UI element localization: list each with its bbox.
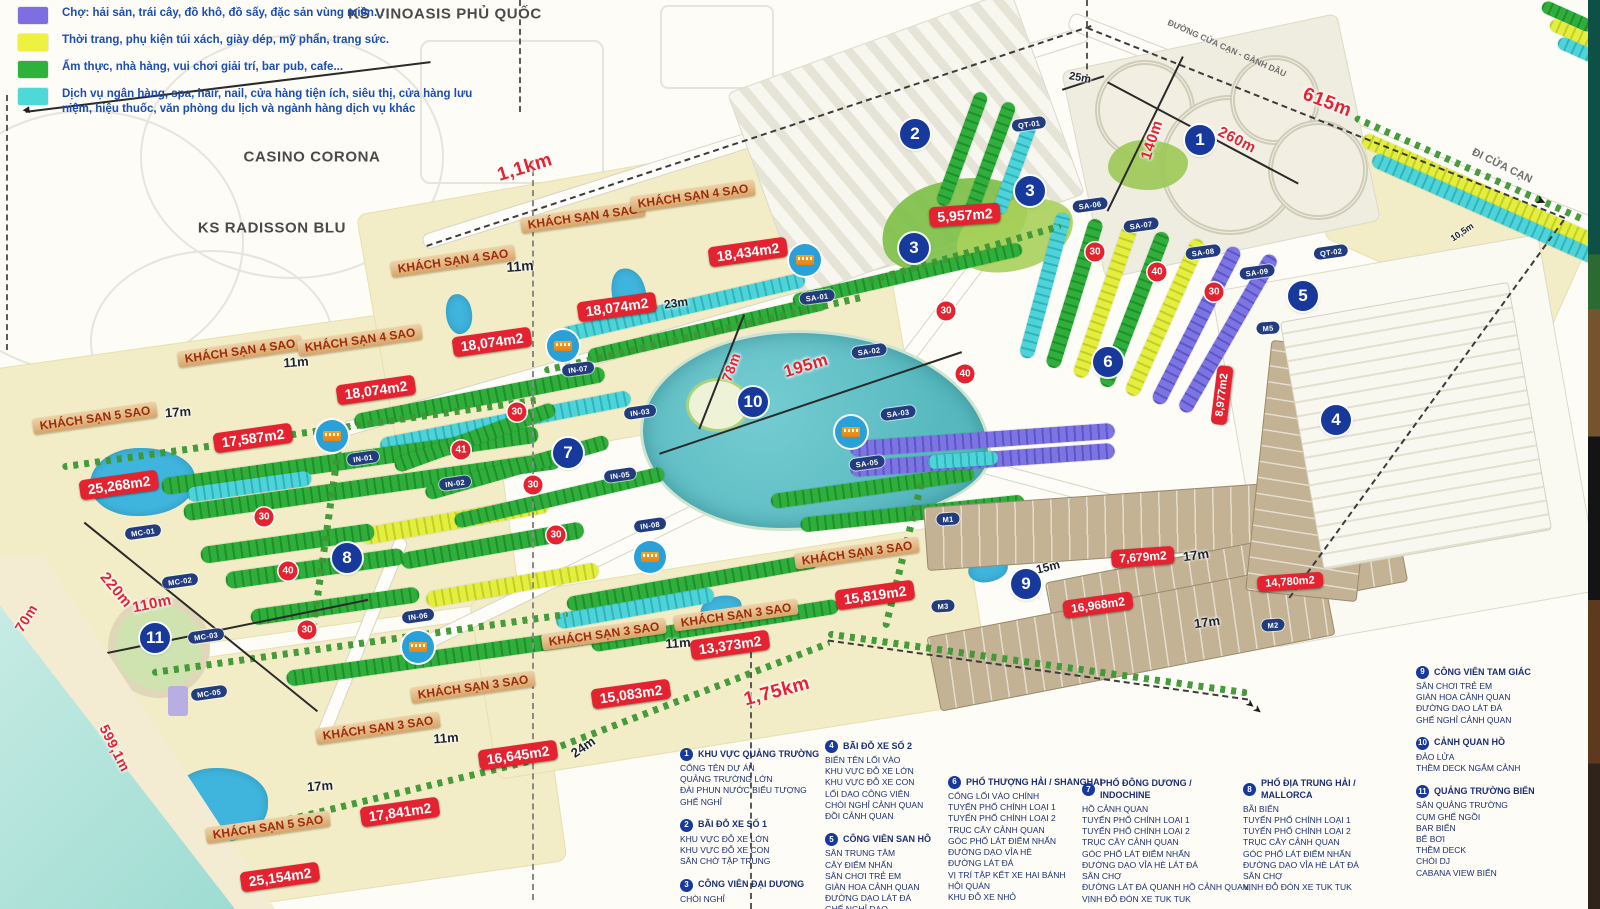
legend-swatch bbox=[18, 61, 48, 78]
construction-line bbox=[1086, 0, 1088, 80]
mini-marker: 30 bbox=[547, 526, 566, 545]
legend-entry-7: 7PHỐ ĐÔNG DƯƠNG / INDOCHINEHỒ CẢNH QUANT… bbox=[1082, 778, 1242, 905]
tag: M5 bbox=[1256, 321, 1280, 335]
mini-marker: 30 bbox=[1205, 283, 1224, 302]
legend-label: Dịch vụ ngân hàng, spa, hair, nail, cửa … bbox=[62, 87, 488, 117]
legend-entry-title: KHU VỰC QUẢNG TRƯỜNG bbox=[698, 749, 819, 761]
marker: 2 bbox=[900, 119, 930, 149]
black-distance: 11m bbox=[433, 730, 459, 747]
legend-entry-number: 7 bbox=[1082, 783, 1095, 796]
tag: M3 bbox=[931, 599, 955, 613]
legend-column: 1KHU VỰC QUẢNG TRƯỜNGCỔNG TÊN DỰ ÁNQUẢNG… bbox=[680, 748, 840, 909]
legend-entry-line: TUYẾN PHỐ CHÍNH LOẠI 2 bbox=[1243, 826, 1403, 837]
marker: 3 bbox=[899, 233, 929, 263]
legend-entry-line: BIỂN TÊN LỐI VÀO bbox=[825, 755, 985, 766]
legend-swatch bbox=[18, 88, 48, 105]
marker: 5 bbox=[1288, 281, 1318, 311]
bus-icon bbox=[796, 255, 814, 265]
black-distance: 17m bbox=[164, 404, 191, 421]
bus-icon bbox=[641, 552, 659, 562]
adjacent-image-sliver bbox=[1588, 0, 1600, 909]
legend-entry-title: BÃI ĐỖ XE SỐ 1 bbox=[698, 819, 767, 831]
bus-icon bbox=[842, 427, 860, 437]
legend-entry-number: 6 bbox=[948, 776, 961, 789]
legend-entry-title: CÔNG VIÊN SAN HÔ bbox=[843, 834, 931, 846]
bus-stop-icon bbox=[789, 244, 821, 276]
legend-label: Chợ: hải sản, trái cây, đồ khô, đồ sấy, … bbox=[62, 6, 384, 21]
tag: M1 bbox=[936, 512, 960, 526]
legend-entry-line: CỔNG TÊN DỰ ÁN bbox=[680, 763, 840, 774]
legend-item: Chợ: hải sản, trái cây, đồ khô, đồ sấy, … bbox=[18, 6, 488, 24]
legend-entry-line: ĐƯỜNG LÁT ĐÁ QUANH HỒ CẢNH QUAN bbox=[1082, 882, 1242, 893]
legend-entry-number: 1 bbox=[680, 748, 693, 761]
marker: 11 bbox=[140, 623, 170, 653]
legend-entry-line: TUYẾN PHỐ CHÍNH LOẠI 2 bbox=[1082, 826, 1242, 837]
mini-marker: 30 bbox=[524, 476, 543, 495]
mini-marker: 30 bbox=[255, 508, 274, 527]
legend-entry-line: VỊNH ĐỖ ĐÓN XE TUK TUK bbox=[1082, 894, 1242, 905]
legend-column: 8PHỐ ĐỊA TRUNG HẢI / MALLORCABÃI BIỂNTUY… bbox=[1243, 778, 1403, 905]
legend-item: Ẩm thực, nhà hàng, vui chơi giải trí, ba… bbox=[18, 60, 488, 78]
black-distance: 17m bbox=[306, 778, 333, 795]
black-distance: 11m bbox=[665, 635, 691, 652]
mini-marker: 30 bbox=[508, 403, 527, 422]
mini-marker: 40 bbox=[956, 365, 975, 384]
legend-entry-title: QUẢNG TRƯỜNG BIỂN bbox=[1434, 786, 1535, 798]
beach-building bbox=[168, 686, 188, 716]
legend-entry-line: ĐƯỜNG DẠO VỈA HÈ LÁT ĐÁ bbox=[1243, 860, 1403, 871]
legend-swatch bbox=[18, 7, 48, 24]
legend-entry-line: ĐẢO LỬA bbox=[1416, 752, 1576, 763]
legend-entry-line: VỊNH ĐỖ ĐÓN XE TUK TUK bbox=[1243, 882, 1403, 893]
mini-marker: 30 bbox=[1086, 243, 1105, 262]
legend-entry-line: ĐƯỜNG DẠO VỈA HÈ LÁT ĐÁ bbox=[1082, 860, 1242, 871]
legend-entry-line: TRỤC CÂY CẢNH QUAN bbox=[1082, 837, 1242, 848]
legend-item: Thời trang, phụ kiện túi xách, giày dép,… bbox=[18, 33, 488, 51]
mini-marker: 30 bbox=[937, 302, 956, 321]
legend-entry-line: BAR BIỂN bbox=[1416, 823, 1576, 834]
legend-entry-number: 8 bbox=[1243, 783, 1256, 796]
legend-entry-number: 11 bbox=[1416, 785, 1429, 798]
mini-marker: 41 bbox=[452, 441, 471, 460]
bus-icon bbox=[409, 642, 427, 652]
legend-entry-line: THỀM DECK NGẮM CẢNH bbox=[1416, 763, 1576, 774]
landmark: CASINO CORONA bbox=[244, 149, 381, 166]
marker: 10 bbox=[738, 387, 768, 417]
tag: SA-09 bbox=[1239, 264, 1275, 281]
housing-grid bbox=[1280, 282, 1552, 570]
legend-entry-line: SÂN CHỢ bbox=[1243, 871, 1403, 882]
legend-entry-line: GHẾ NGHỈ CẢNH QUAN bbox=[1416, 715, 1576, 726]
legend-entry-line: KHU VỰC ĐỖ XE CON bbox=[680, 845, 840, 856]
legend-entry-line: KHU VỰC ĐỖ XE LỚN bbox=[680, 834, 840, 845]
legend-entry-9: 9CÔNG VIÊN TAM GIÁCSÂN CHƠI TRẺ EMGIÀN H… bbox=[1416, 666, 1576, 726]
mini-marker: 30 bbox=[298, 621, 317, 640]
legend-column: 7PHỐ ĐÔNG DƯƠNG / INDOCHINEHỒ CẢNH QUANT… bbox=[1082, 778, 1242, 909]
legend-entry-title: PHỐ ĐỊA TRUNG HẢI / MALLORCA bbox=[1261, 778, 1403, 802]
legend-entry-line: GÓC PHỐ LÁT ĐIỂM NHẤN bbox=[1243, 849, 1403, 860]
legend-entry-line: TUYẾN PHỐ CHÍNH LOẠI 1 bbox=[1082, 815, 1242, 826]
bus-stop-icon bbox=[547, 330, 579, 362]
legend-entry-line: ĐÀI PHUN NƯỚC BIỂU TƯỢNG bbox=[680, 785, 840, 796]
legend-entry-line: ĐƯỜNG DẠO LÁT ĐÁ bbox=[1416, 703, 1576, 714]
legend-entry-10: 10CẢNH QUAN HỒĐẢO LỬATHỀM DECK NGẮM CẢNH bbox=[1416, 737, 1576, 774]
legend-entry-line: SÂN CHỜ TẬP TRUNG bbox=[680, 856, 840, 867]
bus-icon bbox=[323, 431, 341, 441]
legend-label: Thời trang, phụ kiện túi xách, giày dép,… bbox=[62, 33, 389, 48]
legend-entry-11: 11QUẢNG TRƯỜNG BIỂNSÂN QUẢNG TRƯỜNGCỤM G… bbox=[1416, 785, 1576, 879]
legend-entry-8: 8PHỐ ĐỊA TRUNG HẢI / MALLORCABÃI BIỂNTUY… bbox=[1243, 778, 1403, 894]
black-distance: 11m bbox=[283, 354, 309, 371]
legend-entry-line: CABANA VIEW BIỂN bbox=[1416, 868, 1576, 879]
boundary-dashed bbox=[6, 95, 8, 350]
marker: 6 bbox=[1093, 347, 1123, 377]
mini-marker: 40 bbox=[1148, 263, 1167, 282]
legend-entry-2: 2BÃI ĐỖ XE SỐ 1KHU VỰC ĐỖ XE LỚNKHU VỰC … bbox=[680, 819, 840, 868]
legend-entry-number: 9 bbox=[1416, 666, 1429, 679]
legend-entry-line: SÂN CHƠI TRẺ EM bbox=[1416, 681, 1576, 692]
legend-entry-1: 1KHU VỰC QUẢNG TRƯỜNGCỔNG TÊN DỰ ÁNQUẢNG… bbox=[680, 748, 840, 808]
legend-entry-title: CÔNG VIÊN ĐẠI DƯƠNG bbox=[698, 879, 804, 891]
legend-entry-line: CỤM GHẾ NGỒI bbox=[1416, 812, 1576, 823]
legend-entry-line: CHÒI NGHỈ bbox=[680, 894, 840, 905]
legend-entry-line: GHẾ NGHỈ bbox=[680, 797, 840, 808]
marker: 7 bbox=[553, 438, 583, 468]
legend-entry-line: GÓC PHỐ LÁT ĐIỂM NHẤN bbox=[1082, 849, 1242, 860]
legend-entry-line: SÂN CHỢ bbox=[1082, 871, 1242, 882]
bus-icon bbox=[554, 341, 572, 351]
legend-entry-line: BÃI BIỂN bbox=[1243, 804, 1403, 815]
legend-entry-number: 5 bbox=[825, 833, 838, 846]
mini-marker: 40 bbox=[279, 562, 298, 581]
category-legend: Chợ: hải sản, trái cây, đồ khô, đồ sấy, … bbox=[18, 6, 488, 126]
legend-entry-line: SÂN QUẢNG TRƯỜNG bbox=[1416, 800, 1576, 811]
marker: 8 bbox=[332, 543, 362, 573]
legend-item: Dịch vụ ngân hàng, spa, hair, nail, cửa … bbox=[18, 87, 488, 117]
legend-entry-title: CẢNH QUAN HỒ bbox=[1434, 737, 1505, 749]
masterplan-map: Chợ: hải sản, trái cây, đồ khô, đồ sấy, … bbox=[0, 0, 1600, 909]
marker: 1 bbox=[1185, 125, 1215, 155]
bus-stop-icon bbox=[634, 541, 666, 573]
context-outline bbox=[660, 5, 774, 89]
legend-entry-line: THỀM DECK bbox=[1416, 845, 1576, 856]
legend-entry-number: 10 bbox=[1416, 737, 1429, 750]
legend-swatch bbox=[18, 34, 48, 51]
marker: 4 bbox=[1321, 405, 1351, 435]
legend-entry-title: BÃI ĐỖ XE SỐ 2 bbox=[843, 741, 912, 753]
legend-entry-number: 3 bbox=[680, 879, 693, 892]
bus-stop-icon bbox=[402, 631, 434, 663]
tag: QT-02 bbox=[1313, 244, 1349, 261]
legend-entry-3: 3CÔNG VIÊN ĐẠI DƯƠNGCHÒI NGHỈ bbox=[680, 879, 840, 905]
legend-label: Ẩm thực, nhà hàng, vui chơi giải trí, ba… bbox=[62, 60, 343, 75]
legend-entry-number: 2 bbox=[680, 819, 693, 832]
legend-entry-line: TRỤC CÂY CẢNH QUAN bbox=[1243, 837, 1403, 848]
legend-entry-line: GIÀN HOA CẢNH QUAN bbox=[1416, 692, 1576, 703]
legend-entry-line: HỒ CẢNH QUAN bbox=[1082, 804, 1242, 815]
legend-entry-line: QUẢNG TRƯỜNG LỚN bbox=[680, 774, 840, 785]
legend-entry-title: PHỐ ĐÔNG DƯƠNG / INDOCHINE bbox=[1100, 778, 1242, 802]
tag: M2 bbox=[1261, 618, 1285, 632]
legend-entry-line: CHÒI DJ bbox=[1416, 856, 1576, 867]
legend-entry-title: CÔNG VIÊN TAM GIÁC bbox=[1434, 667, 1531, 679]
legend-entry-line: BỂ BƠI bbox=[1416, 834, 1576, 845]
legend-entry-line: TUYẾN PHỐ CHÍNH LOẠI 1 bbox=[1243, 815, 1403, 826]
legend-entry-number: 4 bbox=[825, 740, 838, 753]
marker: 9 bbox=[1011, 569, 1041, 599]
legend-column: 9CÔNG VIÊN TAM GIÁCSÂN CHƠI TRẺ EMGIÀN H… bbox=[1416, 666, 1576, 890]
landmark: KS RADISSON BLU bbox=[198, 220, 346, 237]
bus-stop-icon bbox=[316, 420, 348, 452]
bus-stop-icon bbox=[835, 416, 867, 448]
marker: 3 bbox=[1015, 176, 1045, 206]
